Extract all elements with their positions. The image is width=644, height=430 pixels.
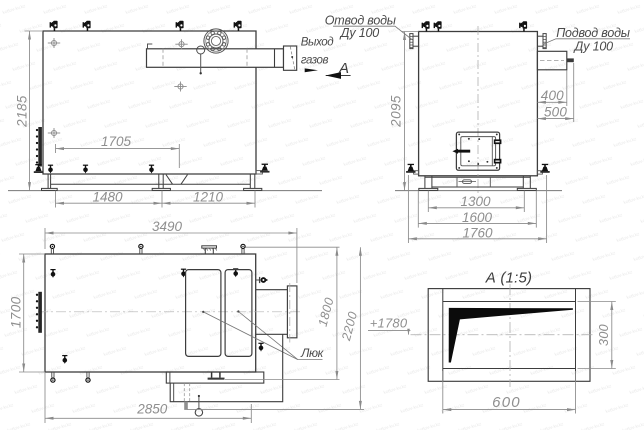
svg-text:Ду 100: Ду 100 — [573, 39, 614, 53]
svg-text:2850: 2850 — [136, 401, 168, 416]
svg-text:2185: 2185 — [15, 95, 30, 128]
svg-text:2095: 2095 — [389, 95, 404, 128]
svg-text:+1780: +1780 — [370, 315, 408, 330]
svg-text:1700: 1700 — [9, 296, 24, 328]
svg-text:Отвод воды: Отвод воды — [325, 13, 396, 27]
svg-text:Выход: Выход — [301, 36, 334, 48]
svg-text:400: 400 — [541, 88, 564, 103]
svg-text:3490: 3490 — [152, 219, 183, 234]
svg-text:600: 600 — [492, 394, 521, 411]
svg-text:1760: 1760 — [462, 225, 493, 240]
svg-text:газов: газов — [301, 55, 329, 67]
svg-text:А (1:5): А (1:5) — [485, 270, 532, 287]
svg-text:1600: 1600 — [462, 210, 493, 225]
svg-text:Подвод воды: Подвод воды — [556, 26, 630, 40]
svg-text:1300: 1300 — [460, 194, 491, 209]
svg-text:Люк: Люк — [300, 346, 324, 360]
svg-text:1480: 1480 — [92, 190, 123, 205]
svg-text:1705: 1705 — [101, 134, 132, 149]
svg-text:А: А — [338, 60, 349, 77]
svg-text:500: 500 — [544, 105, 567, 120]
svg-text:1210: 1210 — [193, 190, 224, 205]
svg-text:Ду 100: Ду 100 — [339, 26, 380, 40]
svg-text:300: 300 — [597, 324, 611, 346]
